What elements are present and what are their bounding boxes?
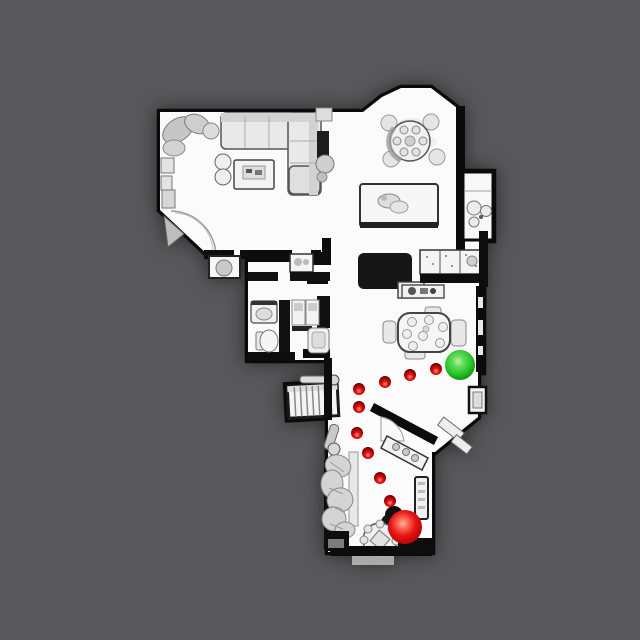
scene-viewport[interactable] <box>0 0 640 640</box>
waypoint-marker-2 <box>404 369 416 381</box>
wall-shelf <box>161 158 174 173</box>
media-cabinet <box>317 131 329 158</box>
waypoint-marker-6 <box>351 427 363 439</box>
arm-top-wall <box>248 272 278 281</box>
speckled-cabinets <box>420 250 482 274</box>
side-table <box>215 154 231 170</box>
waypoint-marker-3 <box>379 376 391 388</box>
agent-marker <box>388 510 422 544</box>
wall-niche <box>469 387 486 413</box>
console-table <box>290 254 313 272</box>
kitchen-island <box>360 184 438 228</box>
scan-noise <box>328 539 344 548</box>
wall-under-cabinets <box>420 274 482 283</box>
arm-divider-wall <box>279 300 290 355</box>
waypoint-marker-7 <box>362 447 374 459</box>
dining-table <box>398 313 450 352</box>
upper-right-wall <box>479 231 488 287</box>
sideboard <box>402 285 444 298</box>
toilet <box>256 330 278 352</box>
waypoint-marker-4 <box>353 383 365 395</box>
armchair <box>308 328 329 353</box>
scan-noise <box>352 556 394 565</box>
window-wall <box>476 286 485 372</box>
arm-bottom-wall <box>248 352 295 361</box>
waypoint-marker-9 <box>384 495 396 507</box>
corridor-left-wall <box>324 358 332 420</box>
wall-cabinet <box>162 190 175 208</box>
side-table <box>215 169 231 185</box>
floorplan-map <box>0 0 640 640</box>
radiator <box>415 477 428 519</box>
potted-plant <box>317 172 327 182</box>
arm-top-wall <box>290 272 330 281</box>
sink-counter <box>463 172 493 240</box>
fern-plant <box>321 451 356 538</box>
washer-dryer <box>292 300 319 325</box>
goal-marker <box>445 350 475 380</box>
entry-alcove <box>209 256 240 278</box>
wall-shelf <box>161 176 172 190</box>
waypoint-marker-1 <box>430 363 442 375</box>
potted-plant <box>316 155 334 173</box>
shelf-unit <box>316 108 332 121</box>
coffee-table <box>234 160 274 189</box>
round-ottoman <box>203 123 219 139</box>
waypoint-marker-8 <box>374 472 386 484</box>
newel-post <box>328 443 340 455</box>
bathroom-sink <box>251 301 277 323</box>
waypoint-marker-5 <box>353 401 365 413</box>
corner-armchair <box>163 140 185 156</box>
